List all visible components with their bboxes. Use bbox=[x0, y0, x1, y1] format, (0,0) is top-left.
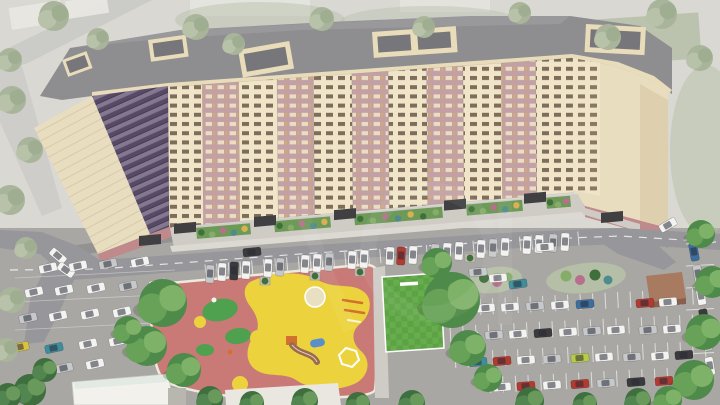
car bbox=[217, 263, 226, 281]
car-glass bbox=[456, 246, 462, 254]
car-glass bbox=[659, 378, 667, 385]
car-glass bbox=[207, 269, 213, 277]
car-glass bbox=[599, 354, 607, 361]
shrub bbox=[276, 223, 282, 229]
car bbox=[509, 329, 528, 339]
car bbox=[205, 265, 214, 283]
car-glass bbox=[640, 300, 648, 307]
shrub bbox=[547, 199, 553, 205]
tree-highlight bbox=[710, 272, 720, 282]
car-glass bbox=[530, 303, 538, 310]
car bbox=[576, 299, 595, 309]
car-glass bbox=[243, 265, 249, 273]
planter-shrub bbox=[262, 278, 269, 285]
car-glass bbox=[575, 355, 583, 362]
car-glass bbox=[410, 250, 416, 258]
tree-highlight bbox=[43, 362, 50, 369]
playground-yellow-dot bbox=[261, 349, 275, 363]
car-glass bbox=[540, 244, 548, 251]
tree-highlight bbox=[10, 91, 18, 99]
shrub bbox=[321, 219, 327, 225]
tree-highlight bbox=[666, 391, 674, 399]
car-glass bbox=[655, 353, 663, 360]
car-glass bbox=[563, 329, 571, 336]
car bbox=[526, 301, 545, 311]
car bbox=[543, 380, 562, 390]
car-glass bbox=[538, 330, 546, 337]
tree-highlight bbox=[52, 6, 61, 15]
tree-highlight bbox=[28, 142, 36, 150]
shrub bbox=[420, 213, 426, 219]
shrub bbox=[513, 202, 519, 208]
shrub bbox=[241, 226, 247, 232]
car bbox=[627, 377, 646, 387]
tree-highlight bbox=[636, 393, 644, 401]
tree-highlight bbox=[96, 32, 103, 39]
shrub bbox=[231, 229, 237, 235]
facade-band-cream bbox=[239, 79, 279, 221]
car bbox=[675, 350, 694, 360]
facade-band-cream bbox=[536, 58, 574, 196]
tree-highlight bbox=[606, 29, 614, 37]
tree-highlight bbox=[583, 396, 590, 403]
car-glass bbox=[643, 327, 651, 334]
architectural-render bbox=[0, 0, 720, 405]
car bbox=[659, 297, 678, 307]
facade-band-mauve bbox=[202, 82, 240, 224]
car bbox=[534, 328, 553, 338]
planter-shrub bbox=[312, 273, 319, 280]
tree-highlight bbox=[691, 367, 703, 379]
tree-highlight bbox=[24, 241, 31, 248]
tree-highlight bbox=[518, 6, 525, 13]
car-glass bbox=[580, 301, 588, 308]
car-glass bbox=[265, 263, 271, 271]
car bbox=[275, 258, 284, 276]
tree-highlight bbox=[4, 342, 11, 349]
tree bbox=[0, 287, 25, 313]
entrance-canopy bbox=[139, 234, 161, 246]
car bbox=[607, 325, 626, 335]
car bbox=[454, 242, 463, 260]
car bbox=[385, 247, 394, 265]
car bbox=[595, 352, 614, 362]
entrance-canopy bbox=[254, 215, 276, 227]
tree-highlight bbox=[486, 369, 494, 377]
car-glass bbox=[547, 382, 555, 389]
shrub bbox=[209, 231, 215, 237]
tree-highlight bbox=[410, 395, 418, 403]
right-end-wall-shade bbox=[640, 84, 668, 228]
entrance-canopy bbox=[601, 211, 623, 223]
car-glass bbox=[679, 352, 687, 359]
tree-highlight bbox=[194, 19, 202, 27]
car bbox=[571, 353, 590, 363]
spring-rider bbox=[228, 350, 233, 355]
tree-highlight bbox=[28, 380, 38, 390]
car bbox=[636, 298, 655, 308]
playground-yellow-dot bbox=[250, 330, 266, 346]
tree-highlight bbox=[320, 11, 327, 18]
car-glass bbox=[513, 281, 522, 288]
playground-yellow-dot bbox=[194, 316, 206, 328]
tree-highlight bbox=[126, 321, 134, 329]
tree-highlight bbox=[10, 292, 18, 300]
car bbox=[493, 356, 512, 366]
car bbox=[536, 242, 555, 252]
car-glass bbox=[398, 251, 404, 259]
car bbox=[396, 247, 405, 265]
shrub bbox=[433, 209, 439, 215]
car-glass bbox=[611, 327, 619, 334]
car bbox=[551, 300, 570, 310]
car bbox=[597, 378, 616, 388]
tree-highlight bbox=[8, 52, 15, 59]
tree-highlight bbox=[698, 50, 706, 58]
car-glass bbox=[521, 357, 529, 364]
car-glass bbox=[481, 305, 489, 312]
facade-band-mauve bbox=[501, 61, 537, 199]
tree-highlight bbox=[528, 392, 536, 400]
car-glass bbox=[302, 259, 308, 267]
entrance-canopy bbox=[524, 192, 546, 204]
spring-rider bbox=[212, 298, 217, 303]
car bbox=[485, 330, 504, 340]
car bbox=[559, 327, 578, 337]
tree bbox=[646, 0, 677, 29]
car bbox=[583, 326, 602, 336]
car bbox=[663, 324, 682, 334]
car bbox=[543, 354, 562, 364]
car-glass bbox=[555, 302, 563, 309]
car bbox=[571, 379, 590, 389]
car-glass bbox=[631, 379, 639, 386]
car bbox=[522, 236, 531, 254]
tree-highlight bbox=[8, 190, 17, 199]
car-glass bbox=[627, 354, 635, 361]
car-glass bbox=[524, 240, 530, 248]
car-glass bbox=[219, 267, 225, 275]
car-glass bbox=[277, 262, 283, 270]
tree-highlight bbox=[435, 253, 444, 262]
entrance-canopy bbox=[334, 208, 356, 220]
tree-highlight bbox=[6, 388, 14, 396]
shrub bbox=[395, 215, 401, 221]
car-glass bbox=[575, 381, 583, 388]
tree-highlight bbox=[660, 4, 669, 13]
car-glass bbox=[601, 380, 609, 387]
shrub bbox=[555, 202, 561, 208]
car bbox=[639, 325, 658, 335]
car bbox=[263, 259, 272, 277]
car-glass bbox=[547, 356, 555, 363]
car-glass bbox=[231, 266, 237, 274]
shrub bbox=[491, 204, 497, 210]
tree-highlight bbox=[181, 359, 191, 369]
car-glass bbox=[489, 332, 497, 339]
car-glass bbox=[247, 249, 256, 256]
car bbox=[517, 355, 536, 365]
tree-highlight bbox=[159, 287, 173, 301]
car bbox=[560, 233, 569, 251]
tree-highlight bbox=[303, 393, 311, 401]
car-glass bbox=[497, 358, 505, 365]
tree-highlight bbox=[356, 396, 363, 403]
car bbox=[347, 251, 356, 269]
car bbox=[243, 247, 262, 257]
shrub bbox=[288, 225, 294, 231]
car bbox=[241, 261, 250, 279]
facade-band-cream bbox=[313, 74, 353, 215]
sand-circle bbox=[305, 287, 325, 307]
car-glass bbox=[349, 255, 355, 263]
building-sliver bbox=[168, 388, 186, 405]
entrance-canopy bbox=[174, 222, 196, 234]
hexagon-climber bbox=[339, 348, 359, 367]
tree-highlight bbox=[232, 37, 239, 44]
car bbox=[300, 255, 309, 273]
car bbox=[229, 262, 238, 280]
car-glass bbox=[562, 237, 568, 245]
playground-green-blob bbox=[196, 344, 214, 356]
tree-highlight bbox=[699, 225, 707, 233]
tree-highlight bbox=[144, 333, 156, 345]
car bbox=[408, 246, 417, 264]
shrub bbox=[563, 198, 569, 204]
facade-band-mauve bbox=[352, 71, 390, 211]
shrub bbox=[357, 216, 363, 222]
shrub bbox=[198, 229, 204, 235]
car-glass bbox=[663, 299, 671, 306]
car-glass bbox=[478, 244, 484, 252]
facade-band-cream bbox=[168, 85, 204, 228]
car-glass bbox=[587, 328, 595, 335]
car-glass bbox=[387, 251, 393, 259]
tree-highlight bbox=[250, 395, 257, 402]
car bbox=[651, 351, 670, 361]
tree-highlight bbox=[465, 336, 476, 347]
shrub bbox=[407, 211, 413, 217]
car bbox=[623, 352, 642, 362]
car-glass bbox=[513, 331, 521, 338]
tree-highlight bbox=[208, 391, 216, 399]
tree-highlight bbox=[422, 20, 429, 27]
car-glass bbox=[667, 326, 675, 333]
tree-highlight bbox=[701, 320, 712, 331]
planter-shrub bbox=[467, 255, 474, 262]
right-end-windows bbox=[572, 58, 600, 196]
facade-band-cream bbox=[463, 63, 503, 202]
shrub bbox=[220, 227, 226, 233]
